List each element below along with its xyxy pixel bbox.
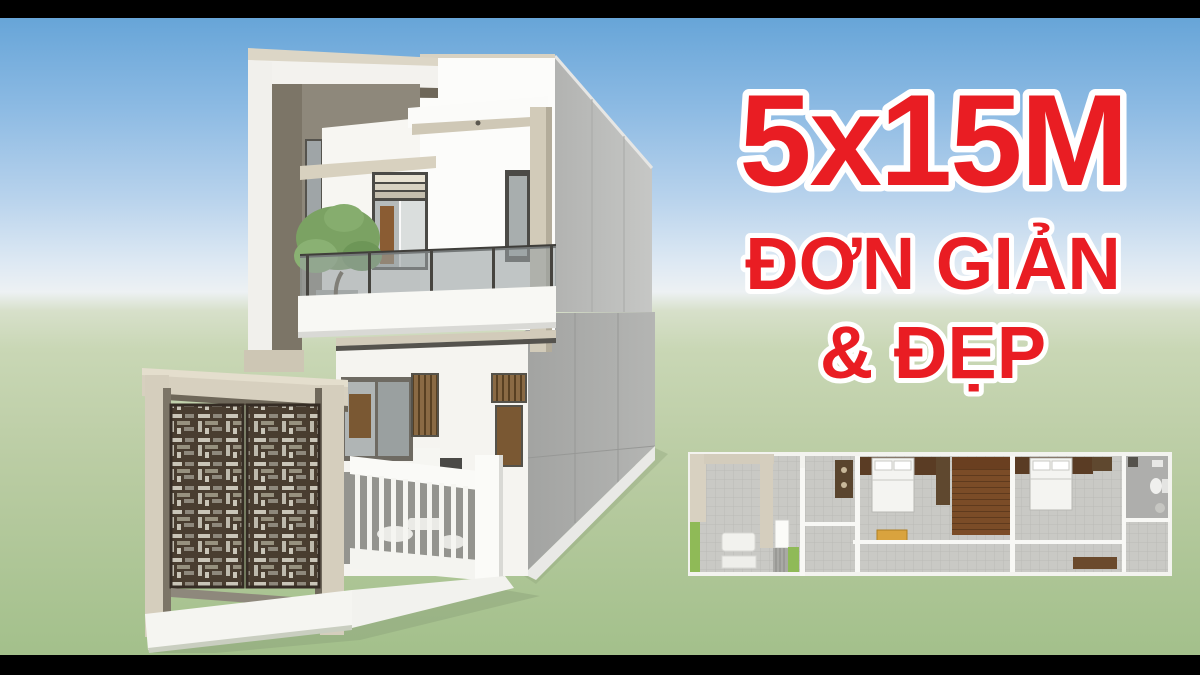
wall xyxy=(855,456,860,572)
slat-transom xyxy=(492,374,526,402)
gate-lattice-right xyxy=(247,405,319,587)
headline-text: 5x15M xyxy=(739,70,1127,213)
slat-window xyxy=(412,374,438,436)
sink xyxy=(1152,460,1163,467)
planter-box xyxy=(788,547,799,572)
bench xyxy=(877,530,907,541)
patio-bench xyxy=(408,518,444,530)
floor-plan xyxy=(688,452,1172,576)
porch-window-large xyxy=(341,377,413,461)
coffee-table xyxy=(722,556,756,568)
wall xyxy=(1010,456,1015,572)
terrace-window xyxy=(775,520,789,548)
sofa xyxy=(722,533,755,551)
wall xyxy=(800,468,805,576)
stairs xyxy=(952,457,1010,535)
toilet xyxy=(1150,478,1162,494)
tagline-line1: ĐƠN GIẢN xyxy=(745,222,1121,305)
wardrobe xyxy=(936,457,950,505)
cabinet xyxy=(835,460,853,498)
bed xyxy=(872,458,914,512)
closet xyxy=(1092,457,1112,471)
shower xyxy=(1128,457,1138,467)
planter-strip xyxy=(690,522,700,572)
letterbox-top xyxy=(0,0,1200,18)
side-wall-upper xyxy=(555,56,652,312)
room-foyer xyxy=(805,456,857,572)
fence-corner-pillar xyxy=(475,455,503,581)
side-wall-lower xyxy=(523,312,655,580)
corridor-wall xyxy=(853,540,1010,544)
overlay-text-block: 5x15M ĐƠN GIẢN & ĐẸP xyxy=(700,70,1180,420)
tagline-line2: & ĐẸP xyxy=(820,311,1046,394)
room-terrace xyxy=(690,454,800,572)
wall xyxy=(1122,456,1126,572)
rug xyxy=(1073,557,1117,569)
downlight-icon xyxy=(476,121,481,126)
room-bathroom xyxy=(1126,456,1170,572)
bed xyxy=(1030,458,1072,510)
house-3d-render xyxy=(0,28,700,653)
background-scene: 5x15M ĐƠN GIẢN & ĐẸP xyxy=(0,18,1200,655)
drain xyxy=(1155,503,1165,513)
gate-lattice-left xyxy=(171,405,243,587)
video-frame: 5x15M ĐƠN GIẢN & ĐẸP xyxy=(0,0,1200,675)
letterbox-bottom xyxy=(0,655,1200,675)
room-bedroom-2 xyxy=(1015,456,1122,572)
